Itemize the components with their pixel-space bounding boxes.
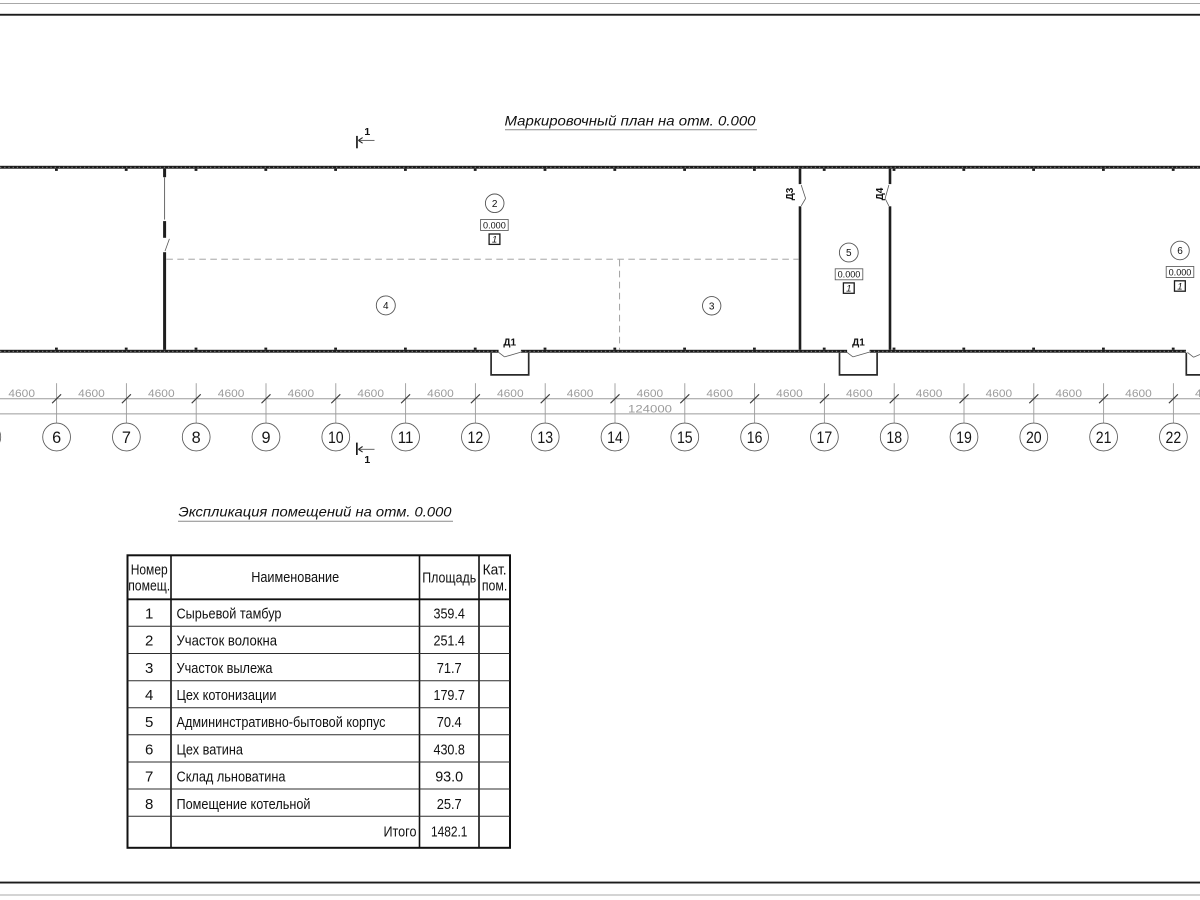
svg-text:Экспликация помещений на отм.: Экспликация помещений на отм. 0.000 <box>179 504 452 519</box>
svg-text:13: 13 <box>537 429 553 447</box>
svg-text:6: 6 <box>145 741 153 758</box>
svg-text:8: 8 <box>192 429 201 447</box>
svg-text:10: 10 <box>328 429 344 447</box>
svg-text:Участок вылежа: Участок вылежа <box>177 660 274 677</box>
svg-text:22: 22 <box>1166 429 1182 447</box>
svg-text:2: 2 <box>492 199 498 210</box>
svg-text:Площадь: Площадь <box>422 570 476 587</box>
svg-text:4600: 4600 <box>1195 388 1200 400</box>
svg-text:Склад льноватина: Склад льноватина <box>177 769 287 786</box>
svg-text:Д4: Д4 <box>875 187 886 200</box>
svg-text:12: 12 <box>468 429 484 447</box>
svg-text:4: 4 <box>383 301 389 312</box>
svg-text:4600: 4600 <box>706 388 733 400</box>
svg-text:Маркировочный план на отм. 0.0: Маркировочный план на отм. 0.000 <box>505 114 756 129</box>
svg-text:7: 7 <box>145 769 153 786</box>
svg-text:4600: 4600 <box>916 388 943 400</box>
svg-text:25.7: 25.7 <box>437 796 462 813</box>
svg-text:1: 1 <box>364 126 370 138</box>
svg-text:6: 6 <box>52 429 61 447</box>
svg-text:19: 19 <box>956 429 972 447</box>
svg-text:4600: 4600 <box>218 388 245 400</box>
svg-text:4600: 4600 <box>567 388 594 400</box>
svg-text:4600: 4600 <box>427 388 454 400</box>
svg-text:Д1: Д1 <box>852 337 865 348</box>
svg-text:1: 1 <box>364 454 370 466</box>
svg-text:3: 3 <box>145 660 153 677</box>
svg-text:Участок волокна: Участок волокна <box>177 633 278 650</box>
svg-text:6: 6 <box>1177 246 1183 257</box>
svg-text:4600: 4600 <box>288 388 315 400</box>
svg-text:17: 17 <box>817 429 833 447</box>
svg-text:4600: 4600 <box>846 388 873 400</box>
svg-text:18: 18 <box>886 429 902 447</box>
svg-text:Д1: Д1 <box>503 337 516 348</box>
svg-text:0.000: 0.000 <box>1169 267 1192 277</box>
svg-text:21: 21 <box>1096 429 1112 447</box>
svg-text:4600: 4600 <box>1125 388 1152 400</box>
svg-text:179.7: 179.7 <box>433 687 465 704</box>
svg-text:4: 4 <box>145 687 153 704</box>
svg-text:430.8: 430.8 <box>433 741 465 758</box>
svg-text:5: 5 <box>846 248 852 259</box>
svg-text:70.4: 70.4 <box>437 714 462 731</box>
svg-text:1: 1 <box>145 605 153 622</box>
svg-text:Номер: Номер <box>131 562 168 579</box>
svg-text:11: 11 <box>398 429 414 447</box>
svg-text:1: 1 <box>846 284 851 295</box>
svg-text:15: 15 <box>677 429 693 447</box>
svg-text:Цех ватина: Цех ватина <box>177 741 244 758</box>
svg-text:4600: 4600 <box>497 388 524 400</box>
svg-text:8: 8 <box>145 796 153 813</box>
svg-text:359.4: 359.4 <box>433 605 465 622</box>
svg-text:1: 1 <box>492 235 497 246</box>
svg-text:помещ.: помещ. <box>128 578 170 595</box>
svg-text:3: 3 <box>709 301 715 312</box>
svg-text:14: 14 <box>607 429 623 447</box>
svg-text:16: 16 <box>747 429 763 447</box>
svg-text:4600: 4600 <box>148 388 175 400</box>
svg-text:4600: 4600 <box>986 388 1013 400</box>
svg-text:93.0: 93.0 <box>435 769 463 786</box>
svg-text:Итого: Итого <box>384 824 417 841</box>
svg-text:4600: 4600 <box>8 388 35 400</box>
svg-text:124000: 124000 <box>628 403 672 415</box>
svg-text:4600: 4600 <box>1055 388 1082 400</box>
svg-text:4600: 4600 <box>78 388 105 400</box>
svg-text:0.000: 0.000 <box>838 270 861 280</box>
svg-text:5: 5 <box>145 714 153 731</box>
svg-text:2: 2 <box>145 633 153 650</box>
svg-text:1482.1: 1482.1 <box>431 824 468 841</box>
svg-text:9: 9 <box>261 429 270 447</box>
svg-text:251.4: 251.4 <box>433 633 465 650</box>
svg-text:пом.: пом. <box>482 578 508 595</box>
svg-text:4600: 4600 <box>637 388 664 400</box>
svg-text:7: 7 <box>122 429 131 447</box>
svg-text:4600: 4600 <box>776 388 803 400</box>
svg-text:0.000: 0.000 <box>483 220 506 230</box>
svg-text:Помещение котельной: Помещение котельной <box>177 796 311 813</box>
svg-text:Кат.: Кат. <box>483 562 507 579</box>
svg-text:Д3: Д3 <box>785 187 796 200</box>
svg-text:Сырьевой тамбур: Сырьевой тамбур <box>177 605 282 622</box>
svg-text:Админинстративно-бытовой корпу: Админинстративно-бытовой корпус <box>177 714 386 731</box>
svg-text:1: 1 <box>1177 281 1182 292</box>
svg-text:Наименование: Наименование <box>251 569 339 586</box>
svg-text:Цех котонизации: Цех котонизации <box>177 687 277 704</box>
svg-text:71.7: 71.7 <box>437 660 462 677</box>
svg-text:20: 20 <box>1026 429 1042 447</box>
svg-text:4600: 4600 <box>357 388 384 400</box>
